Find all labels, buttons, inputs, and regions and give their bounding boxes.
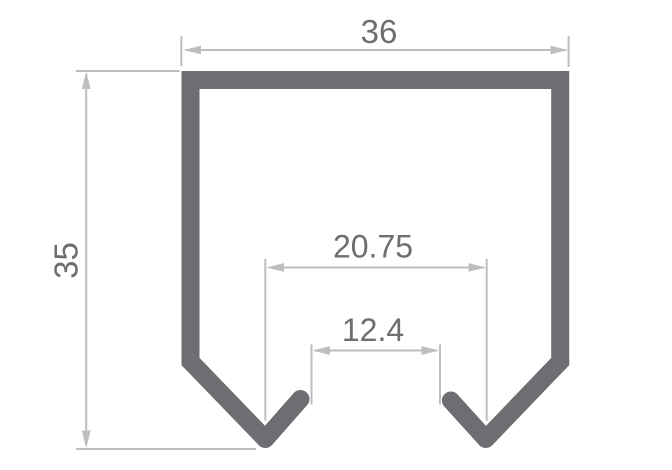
svg-text:35: 35: [48, 242, 85, 279]
svg-text:36: 36: [361, 13, 398, 50]
svg-text:12.4: 12.4: [342, 312, 404, 348]
svg-text:20.75: 20.75: [333, 229, 413, 265]
